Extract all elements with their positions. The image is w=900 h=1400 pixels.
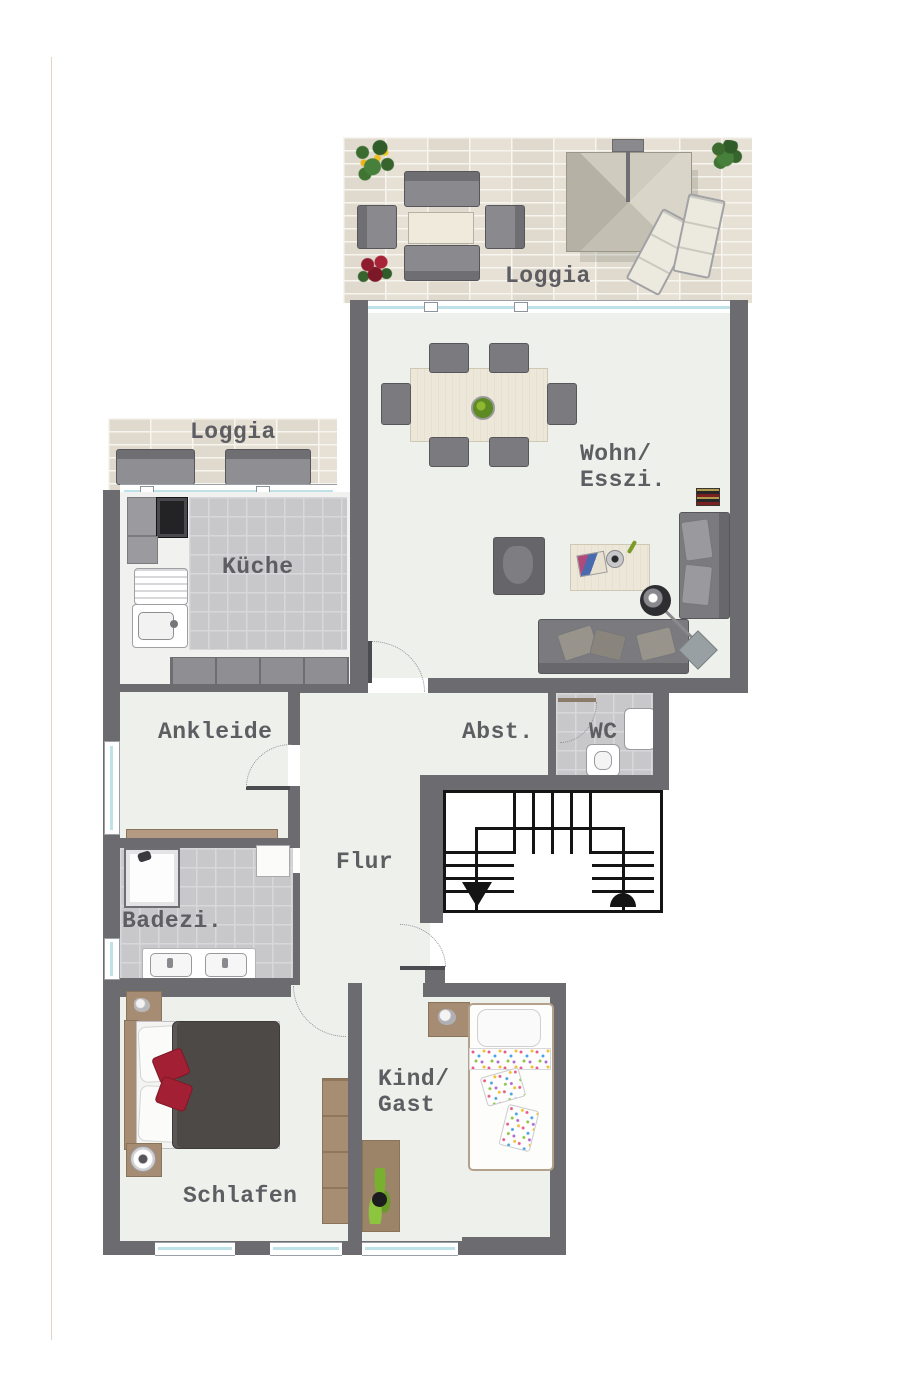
room-label-kind-line2: Gast <box>378 1092 435 1118</box>
arc-lamp-shade <box>640 585 671 616</box>
shower <box>124 848 180 908</box>
window-glass <box>356 306 744 309</box>
room-label-wohn-line1: Wohn/ <box>580 441 652 467</box>
stair-direction-arrow-icon <box>462 882 492 907</box>
window-glass <box>110 942 113 976</box>
loggia-sofa <box>404 245 480 281</box>
wall-mid <box>348 983 362 1255</box>
window-handle <box>424 302 438 312</box>
room-label-kind-gast: Kind/Gast <box>378 1066 450 1119</box>
dining-chair <box>489 343 529 373</box>
loggia-bench <box>225 449 311 485</box>
table-plant <box>471 396 495 420</box>
window-glass <box>158 1247 232 1250</box>
wall <box>730 300 748 693</box>
bowl <box>606 550 624 568</box>
window-badezimmer <box>104 938 120 980</box>
room-label-wohn-esszi: Wohn/Esszi. <box>580 441 666 494</box>
wall <box>288 693 300 745</box>
stair-step <box>446 851 514 854</box>
wc-basin <box>624 708 656 750</box>
stair-step <box>446 877 514 880</box>
stair-line <box>475 827 625 830</box>
window-glass <box>273 1247 339 1250</box>
nightstand-lamp <box>130 1146 156 1172</box>
stair-step <box>592 877 654 880</box>
room-label-loggia-top: Loggia <box>505 263 591 289</box>
nightstand-lamp <box>438 1009 456 1025</box>
window-schlafen-2 <box>270 1242 342 1256</box>
armchair-seat <box>503 546 533 584</box>
flower-pot <box>355 252 397 288</box>
sofa-cushion <box>680 518 713 562</box>
wall-bottom-right <box>462 1237 566 1255</box>
flower-pot <box>710 140 744 170</box>
basin-faucet <box>222 958 228 968</box>
room-label-abstellraum: Abst. <box>462 719 534 745</box>
stair-step <box>570 793 573 854</box>
parasol-pole <box>626 146 630 202</box>
dining-chair <box>381 383 411 425</box>
wall <box>350 300 368 693</box>
bed-pillow <box>477 1009 541 1047</box>
room-label-schlafen: Schlafen <box>183 1183 297 1209</box>
nightstand-decor <box>134 998 150 1012</box>
room-label-loggia-small: Loggia <box>190 419 276 445</box>
kitchen-drainer <box>134 568 188 605</box>
loggia-bench <box>116 449 195 485</box>
stair-step <box>446 864 514 867</box>
window-schlafen-1 <box>155 1242 235 1256</box>
flower-pot <box>350 138 400 186</box>
wall <box>428 678 748 693</box>
dining-chair <box>429 437 469 467</box>
stair-step <box>513 793 516 854</box>
sofa-cushion <box>681 564 713 607</box>
door-swing-kind <box>400 924 446 967</box>
wall <box>425 968 445 984</box>
room-label-kueche: Küche <box>222 554 294 580</box>
toilet-bowl <box>594 751 612 770</box>
window-ankleide <box>104 741 120 835</box>
window-handle <box>514 302 528 312</box>
wall <box>420 775 669 790</box>
bath-door-leaf <box>256 845 290 877</box>
sink-faucet <box>170 620 178 628</box>
room-label-ankleide: Ankleide <box>158 719 272 745</box>
loggia-coffee-table <box>408 212 474 244</box>
plant-pot <box>372 1192 387 1207</box>
wall <box>423 983 565 997</box>
stair-step <box>532 793 535 854</box>
stair-step <box>551 793 554 854</box>
page-edge-line <box>51 57 52 1340</box>
room-label-kind-line1: Kind/ <box>378 1066 450 1092</box>
wall <box>288 786 300 840</box>
window-glass <box>110 746 113 830</box>
room-label-wc: WC <box>589 719 618 745</box>
wall-stairwell <box>420 790 443 923</box>
stair-step <box>592 851 654 854</box>
room-label-badezimmer: Badezi. <box>122 908 222 934</box>
dining-chair <box>547 383 577 425</box>
room-label-wohn-line2: Esszi. <box>580 467 666 493</box>
wall <box>653 693 669 777</box>
bed-blanket-band <box>469 1048 551 1070</box>
window-kind-gast <box>362 1242 458 1256</box>
dining-chair <box>489 437 529 467</box>
floor-plan: Loggia Wohn/Esszi. Loggia <box>0 0 900 1400</box>
sink-basin <box>138 612 174 640</box>
parasol-mount <box>612 139 644 152</box>
wall-outer-left <box>103 490 120 1255</box>
stair-step <box>589 793 592 854</box>
wall-shelf <box>696 488 720 506</box>
loggia-armchair <box>485 205 525 249</box>
kitchen-oven <box>156 497 188 538</box>
basin-faucet <box>167 958 173 968</box>
wall <box>548 693 556 777</box>
kitchen-cabinet <box>127 497 158 536</box>
dining-chair <box>429 343 469 373</box>
loggia-armchair <box>357 205 397 249</box>
stair-step <box>592 864 654 867</box>
room-label-flur: Flur <box>336 849 393 875</box>
loggia-sofa <box>404 171 480 207</box>
kitchen-cabinet <box>127 536 158 564</box>
window-glass <box>365 1247 455 1250</box>
